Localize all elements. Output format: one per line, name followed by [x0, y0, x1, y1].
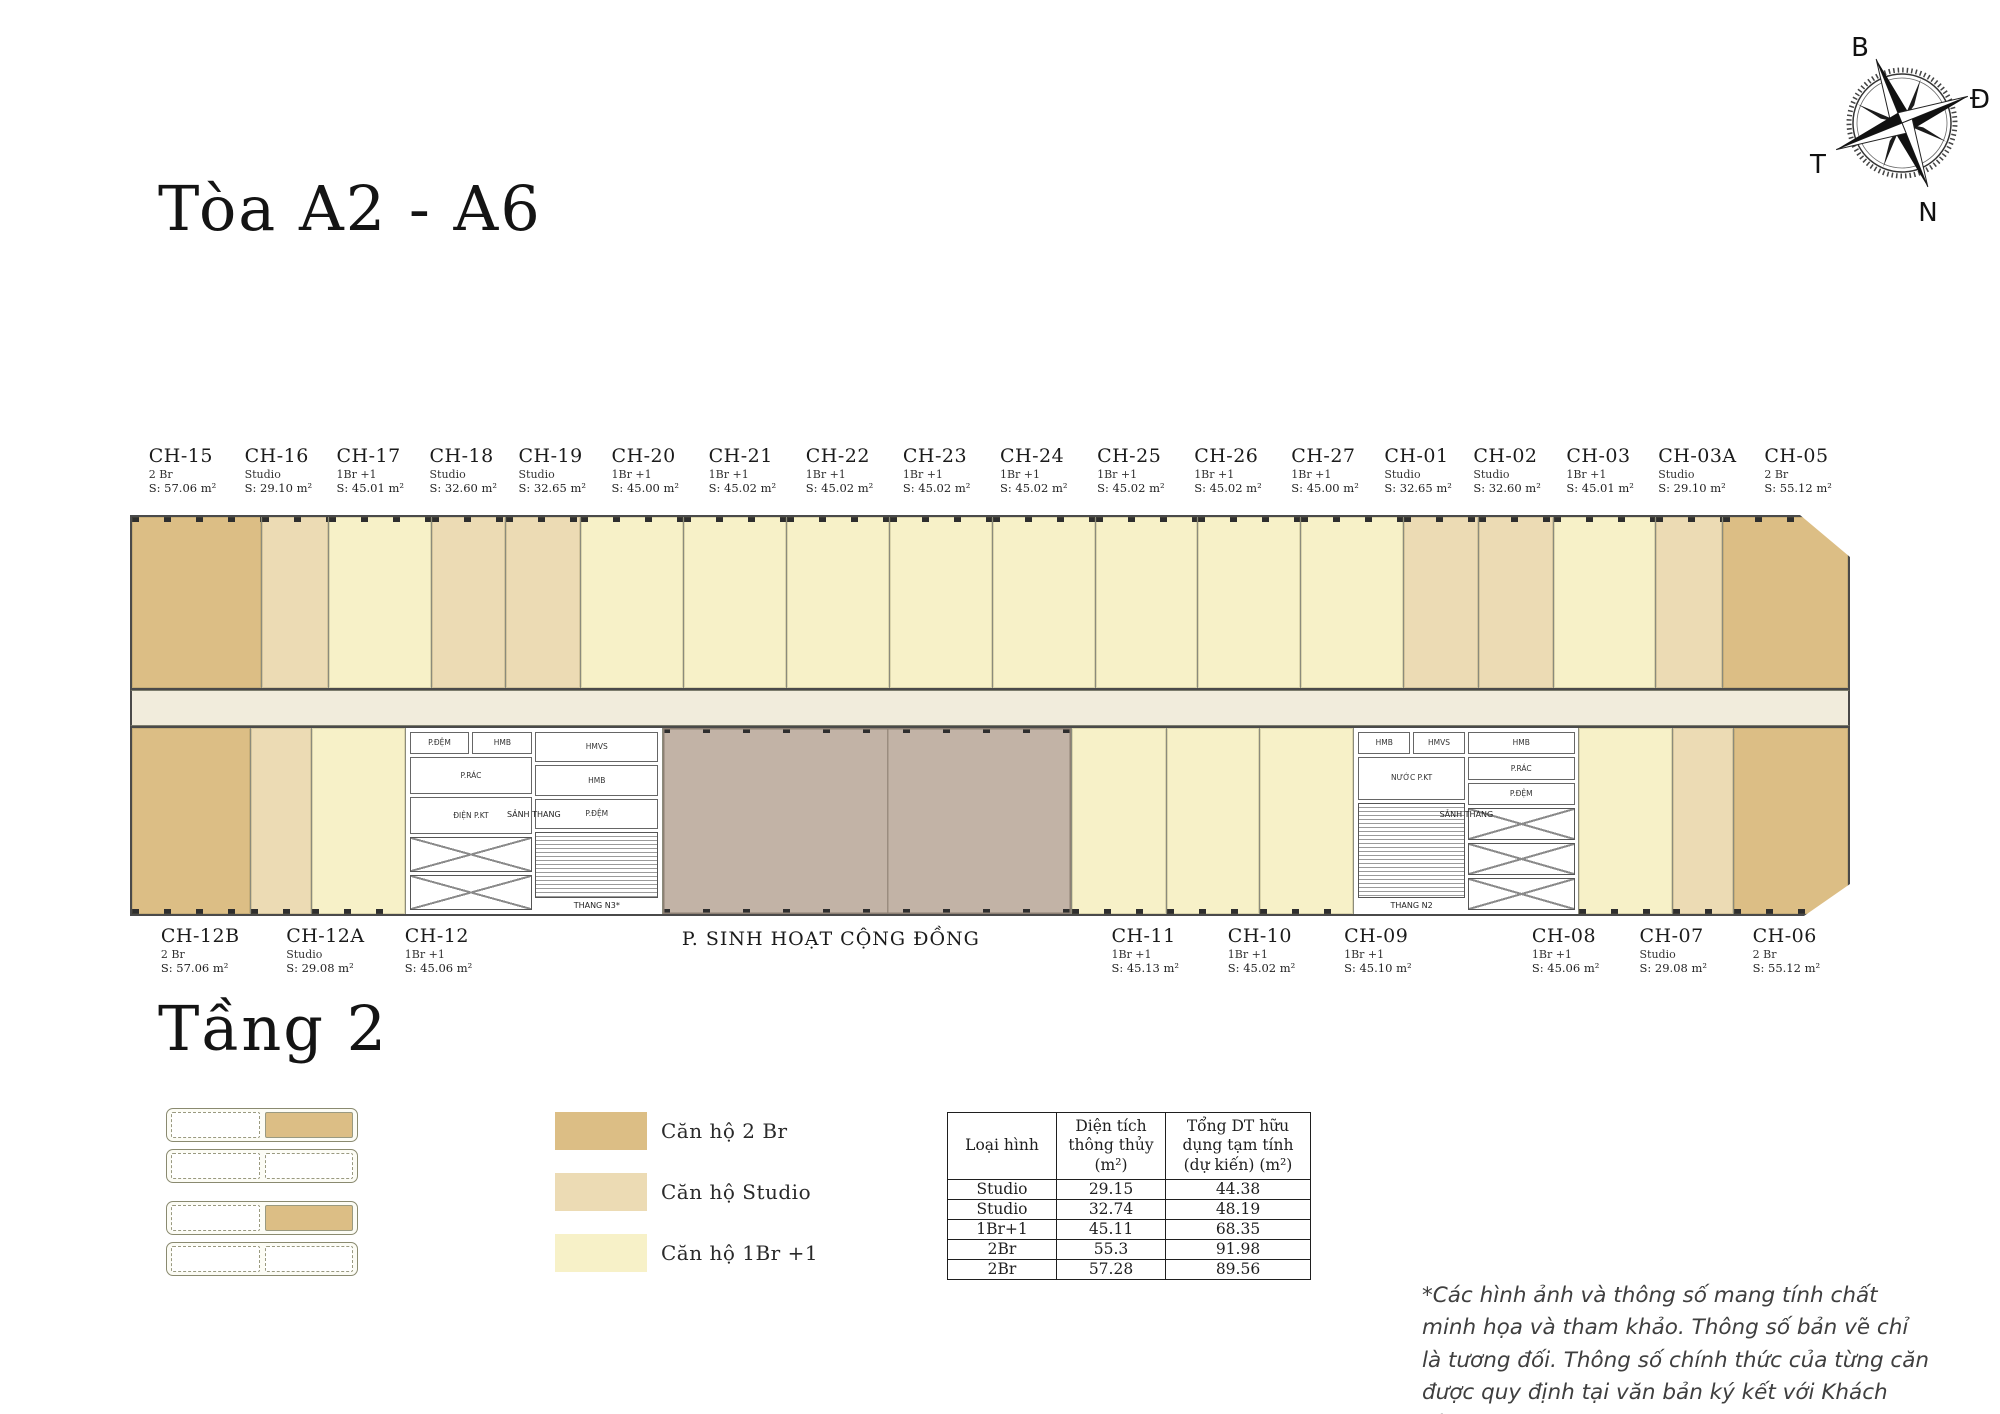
table-cell: 44.38 — [1166, 1180, 1311, 1200]
legend: Căn hộ 2 BrCăn hộ StudioCăn hộ 1Br +1 — [555, 1112, 818, 1295]
unit-label-id: CH-08 — [1532, 926, 1600, 946]
unit-label-CH-03A: CH-03AStudioS: 29.10 m² — [1649, 446, 1747, 510]
disclaimer-text: *Các hình ảnh và thông số mang tính chất… — [1422, 1280, 1932, 1414]
core-room: NƯỚC P.KT — [1358, 757, 1465, 800]
plan-corridor — [130, 690, 1850, 726]
unit-label-CH-17: CH-171Br +1S: 45.01 m² — [322, 446, 419, 510]
unit-label-CH-12A: CH-12AStudioS: 29.08 m² — [270, 926, 380, 998]
minimap-building-slab — [166, 1201, 358, 1235]
page-title: Tòa A2 - A6 — [158, 172, 542, 245]
unit-label-CH-16: CH-16StudioS: 29.10 m² — [235, 446, 322, 510]
core-room: P.RÁC — [1468, 757, 1575, 779]
plan-bottom-wing: P.ĐỆMHMBP.RÁCĐIỆN P.KTHMVSHMBP.ĐỆMTHANG … — [130, 726, 1850, 916]
plan-unit-CH-03A — [1656, 517, 1723, 688]
unit-label-CH-12: CH-121Br +1S: 45.06 m² — [380, 926, 496, 998]
unit-label-type: 1Br +1 — [1194, 468, 1262, 481]
unit-label-type: 1Br +1 — [1566, 468, 1634, 481]
table-row: Studio29.1544.38 — [948, 1180, 1311, 1200]
community-room-label: P. SINH HOẠT CỘNG ĐỒNG — [682, 928, 980, 950]
unit-label-id: CH-24 — [1000, 446, 1068, 466]
minimap-highlighted-block — [265, 1205, 354, 1231]
stair-label: THANG N2 — [1358, 901, 1465, 910]
unit-label-type: 1Br +1 — [1228, 948, 1296, 961]
unit-label-area: S: 45.13 m² — [1111, 961, 1179, 975]
unit-label-type: 1Br +1 — [336, 468, 404, 481]
unit-label-area: S: 45.01 m² — [336, 481, 404, 495]
unit-label-area: S: 45.06 m² — [405, 961, 473, 975]
unit-label-type: Studio — [286, 948, 364, 961]
unit-label-area: S: 45.10 m² — [1344, 961, 1412, 975]
minimap-building-slab — [166, 1149, 358, 1183]
table-cell: Studio — [948, 1200, 1057, 1220]
unit-label-type: 1Br +1 — [903, 468, 971, 481]
unit-label-type: 2 Br — [149, 468, 217, 481]
compass-south-label: N — [1918, 198, 1937, 228]
table-header-cell: Diện tích thông thủy (m²) — [1057, 1113, 1166, 1180]
core-room: P.ĐỆM — [410, 732, 470, 754]
legend-item: Căn hộ Studio — [555, 1173, 818, 1211]
unit-label-CH-20: CH-201Br +1S: 45.00 m² — [597, 446, 694, 510]
unit-label-area: S: 45.02 m² — [806, 481, 874, 495]
unit-label-area: S: 29.10 m² — [245, 481, 313, 495]
unit-label-area: S: 45.02 m² — [1097, 481, 1165, 495]
unit-label-area: S: 55.12 m² — [1753, 961, 1821, 975]
core-room: HMB — [535, 765, 658, 795]
unit-label-id: CH-10 — [1228, 926, 1296, 946]
minimap-block — [171, 1112, 260, 1138]
plan-community-room — [663, 728, 1072, 914]
unit-label-id: CH-06 — [1753, 926, 1821, 946]
unit-label-CH-03: CH-031Br +1S: 45.01 m² — [1552, 446, 1649, 510]
table-cell: 2Br — [948, 1240, 1057, 1260]
unit-label-CH-23: CH-231Br +1S: 45.02 m² — [888, 446, 985, 510]
legend-swatch — [555, 1112, 647, 1150]
floor-title: Tầng 2 — [158, 992, 388, 1065]
unit-label-area: S: 32.65 m² — [518, 481, 586, 495]
unit-label-CH-26: CH-261Br +1S: 45.02 m² — [1179, 446, 1276, 510]
plan-unit-CH-02 — [1479, 517, 1554, 688]
elevator-shaft — [410, 875, 533, 910]
table-cell: 48.19 — [1166, 1200, 1311, 1220]
unit-label-id: CH-09 — [1344, 926, 1412, 946]
unit-label-id: CH-23 — [903, 446, 971, 466]
plan-unit-CH-03 — [1554, 517, 1657, 688]
unit-label-id: CH-01 — [1384, 446, 1452, 466]
unit-label-area: S: 45.02 m² — [1194, 481, 1262, 495]
core-room: HMVS — [1413, 732, 1465, 754]
unit-label-area: S: 45.00 m² — [612, 481, 680, 495]
core-room: HMB — [1358, 732, 1410, 754]
plan-core-left: P.ĐỆMHMBP.RÁCĐIỆN P.KTHMVSHMBP.ĐỆMTHANG … — [406, 728, 664, 914]
plan-unit-CH-01 — [1404, 517, 1479, 688]
unit-label-id: CH-07 — [1640, 926, 1708, 946]
top-unit-label-row: CH-152 BrS: 57.06 m²CH-16StudioS: 29.10 … — [130, 446, 1850, 510]
unit-label-id: CH-21 — [709, 446, 777, 466]
unit-label-id: CH-26 — [1194, 446, 1262, 466]
table-row: 1Br+145.1168.35 — [948, 1220, 1311, 1240]
unit-label-type: 1Br +1 — [1532, 948, 1600, 961]
plan-unit-CH-25 — [1096, 517, 1199, 688]
table-cell: 91.98 — [1166, 1240, 1311, 1260]
unit-label-type: 1Br +1 — [709, 468, 777, 481]
legend-label: Căn hộ Studio — [661, 1180, 811, 1204]
unit-label-id: CH-15 — [149, 446, 217, 466]
unit-label-CH-02: CH-02StudioS: 32.60 m² — [1463, 446, 1552, 510]
unit-label-CH-10: CH-101Br +1S: 45.02 m² — [1203, 926, 1319, 998]
unit-label-area: S: 29.10 m² — [1658, 481, 1736, 495]
unit-label-area: S: 32.65 m² — [1384, 481, 1452, 495]
plan-top-wing — [130, 515, 1850, 690]
unit-label-CH-01: CH-01StudioS: 32.65 m² — [1374, 446, 1463, 510]
minimap-block — [171, 1246, 260, 1272]
core-label-spacer — [497, 926, 575, 998]
table-cell: 57.28 — [1057, 1260, 1166, 1280]
unit-label-type: Studio — [1658, 468, 1736, 481]
site-minimap — [166, 1108, 358, 1276]
lobby-label: SẢNH THANG — [1354, 810, 1578, 819]
unit-label-CH-19: CH-19StudioS: 32.65 m² — [508, 446, 597, 510]
table-cell: 89.56 — [1166, 1260, 1311, 1280]
elevator-shaft — [410, 837, 533, 872]
elevator-shaft — [1468, 843, 1575, 875]
unit-label-id: CH-12 — [405, 926, 473, 946]
unit-label-type: 1Br +1 — [1291, 468, 1359, 481]
compass-icon: B Đ T N — [1802, 8, 2000, 228]
unit-label-id: CH-18 — [430, 446, 498, 466]
table-cell: 68.35 — [1166, 1220, 1311, 1240]
unit-label-id: CH-19 — [518, 446, 586, 466]
community-room-label-cell: P. SINH HOẠT CỘNG ĐỒNG — [575, 926, 1087, 998]
core-col-a: P.ĐỆMHMBP.RÁCĐIỆN P.KT — [410, 732, 533, 910]
unit-label-CH-09: CH-091Br +1S: 45.10 m² — [1320, 926, 1436, 998]
plan-unit-CH-17 — [329, 517, 432, 688]
unit-label-id: CH-05 — [1764, 446, 1832, 466]
minimap-group — [166, 1108, 358, 1183]
elevator-shaft — [1468, 878, 1575, 910]
table-cell: 29.15 — [1057, 1180, 1166, 1200]
plan-unit-CH-08 — [1579, 728, 1673, 914]
unit-label-type: 1Br +1 — [1097, 468, 1165, 481]
plan-unit-CH-05 — [1723, 517, 1848, 688]
compass-east-label: Đ — [1970, 85, 1990, 115]
unit-label-id: CH-03 — [1566, 446, 1634, 466]
compass-west-label: T — [1809, 150, 1826, 180]
plan-unit-CH-09 — [1260, 728, 1354, 914]
table-row: 2Br57.2889.56 — [948, 1260, 1311, 1280]
unit-label-CH-07: CH-07StudioS: 29.08 m² — [1624, 926, 1723, 998]
table-cell: 32.74 — [1057, 1200, 1166, 1220]
plan-unit-CH-10 — [1167, 728, 1261, 914]
unit-label-CH-18: CH-18StudioS: 32.60 m² — [419, 446, 508, 510]
unit-label-type: 1Br +1 — [612, 468, 680, 481]
unit-label-type: 2 Br — [161, 948, 240, 961]
unit-label-area: S: 55.12 m² — [1764, 481, 1832, 495]
unit-label-id: CH-02 — [1473, 446, 1541, 466]
table-cell: 45.11 — [1057, 1220, 1166, 1240]
plan-core-right: HMBHMVSNƯỚC P.KTTHANG N2HMBP.RÁCP.ĐỆMSẢN… — [1354, 728, 1579, 914]
unit-label-type: Studio — [1384, 468, 1452, 481]
unit-label-type: 2 Br — [1764, 468, 1832, 481]
unit-label-type: 1Br +1 — [806, 468, 874, 481]
unit-label-type: 1Br +1 — [405, 948, 473, 961]
unit-label-area: S: 32.60 m² — [1473, 481, 1541, 495]
area-table: Loại hìnhDiện tích thông thủy (m²)Tổng D… — [947, 1112, 1311, 1280]
unit-label-type: Studio — [245, 468, 313, 481]
unit-label-type: 1Br +1 — [1111, 948, 1179, 961]
unit-label-type: Studio — [430, 468, 498, 481]
unit-label-area: S: 32.60 m² — [430, 481, 498, 495]
plan-unit-CH-20 — [581, 517, 684, 688]
bottom-unit-label-row: CH-12B2 BrS: 57.06 m²CH-12AStudioS: 29.0… — [130, 926, 1850, 998]
minimap-building-slab — [166, 1242, 358, 1276]
plan-unit-CH-27 — [1301, 517, 1404, 688]
table-cell: Studio — [948, 1180, 1057, 1200]
table-header-row: Loại hìnhDiện tích thông thủy (m²)Tổng D… — [948, 1113, 1311, 1180]
unit-label-area: S: 45.06 m² — [1532, 961, 1600, 975]
compass-north-label: B — [1851, 33, 1869, 63]
minimap-highlighted-block — [265, 1112, 354, 1138]
table-row: Studio32.7448.19 — [948, 1200, 1311, 1220]
unit-label-id: CH-16 — [245, 446, 313, 466]
table-header-cell: Loại hình — [948, 1113, 1057, 1180]
minimap-block — [171, 1153, 260, 1179]
core-room: HMB — [472, 732, 532, 754]
unit-label-area: S: 29.08 m² — [286, 961, 364, 975]
unit-label-id: CH-03A — [1658, 446, 1736, 466]
table-cell: 1Br+1 — [948, 1220, 1057, 1240]
core-col-b: HMBP.RÁCP.ĐỆM — [1468, 732, 1575, 910]
plan-unit-CH-12 — [312, 728, 406, 914]
legend-item: Căn hộ 1Br +1 — [555, 1234, 818, 1272]
unit-label-CH-05: CH-052 BrS: 55.12 m² — [1746, 446, 1850, 510]
unit-label-CH-24: CH-241Br +1S: 45.02 m² — [985, 446, 1082, 510]
unit-label-type: 1Br +1 — [1000, 468, 1068, 481]
plan-unit-CH-21 — [684, 517, 787, 688]
unit-label-area: S: 45.00 m² — [1291, 481, 1359, 495]
unit-label-area: S: 45.01 m² — [1566, 481, 1634, 495]
core-col-a: HMBHMVSNƯỚC P.KTTHANG N2 — [1358, 732, 1465, 910]
unit-label-area: S: 45.02 m² — [903, 481, 971, 495]
unit-label-id: CH-11 — [1111, 926, 1179, 946]
table-header-cell: Tổng DT hữu dụng tạm tính (dự kiến) (m²) — [1166, 1113, 1311, 1180]
plan-unit-CH-11 — [1072, 728, 1166, 914]
core-room: HMB — [1468, 732, 1575, 754]
table-cell: 55.3 — [1057, 1240, 1166, 1260]
unit-label-id: CH-27 — [1291, 446, 1359, 466]
unit-label-area: S: 45.02 m² — [1000, 481, 1068, 495]
unit-label-CH-21: CH-211Br +1S: 45.02 m² — [694, 446, 791, 510]
core-label-spacer — [1436, 926, 1507, 998]
minimap-group — [166, 1201, 358, 1276]
unit-label-type: 1Br +1 — [1344, 948, 1412, 961]
unit-label-area: S: 29.08 m² — [1640, 961, 1708, 975]
unit-label-area: S: 45.02 m² — [1228, 961, 1296, 975]
unit-label-CH-06: CH-062 BrS: 55.12 m² — [1723, 926, 1850, 998]
legend-label: Căn hộ 1Br +1 — [661, 1241, 818, 1265]
lobby-label: SẢNH THANG — [406, 810, 663, 819]
minimap-building-slab — [166, 1108, 358, 1142]
floor-plan: P.ĐỆMHMBP.RÁCĐIỆN P.KTHMVSHMBP.ĐỆMTHANG … — [130, 515, 1850, 916]
unit-label-id: CH-25 — [1097, 446, 1165, 466]
core-col-b: HMVSHMBP.ĐỆMTHANG N3* — [535, 732, 658, 910]
unit-label-id: CH-20 — [612, 446, 680, 466]
plan-unit-CH-06 — [1734, 728, 1848, 914]
unit-label-area: S: 57.06 m² — [149, 481, 217, 495]
unit-label-area: S: 57.06 m² — [161, 961, 240, 975]
unit-label-type: Studio — [1640, 948, 1708, 961]
stair-flight — [535, 832, 658, 898]
core-room: P.RÁC — [410, 757, 533, 794]
legend-label: Căn hộ 2 Br — [661, 1119, 788, 1143]
plan-unit-CH-07 — [1673, 728, 1734, 914]
plan-unit-CH-18 — [432, 517, 507, 688]
table-row: 2Br55.391.98 — [948, 1240, 1311, 1260]
plan-unit-CH-26 — [1198, 517, 1301, 688]
unit-label-id: CH-12B — [161, 926, 240, 946]
unit-label-CH-11: CH-111Br +1S: 45.13 m² — [1087, 926, 1203, 998]
unit-label-CH-25: CH-251Br +1S: 45.02 m² — [1082, 446, 1179, 510]
unit-label-type: 2 Br — [1753, 948, 1821, 961]
unit-label-CH-22: CH-221Br +1S: 45.02 m² — [791, 446, 888, 510]
plan-unit-CH-19 — [506, 517, 581, 688]
unit-label-CH-12B: CH-12B2 BrS: 57.06 m² — [130, 926, 270, 998]
unit-label-id: CH-12A — [286, 926, 364, 946]
legend-item: Căn hộ 2 Br — [555, 1112, 818, 1150]
core-room: HMVS — [535, 732, 658, 762]
legend-swatch — [555, 1173, 647, 1211]
unit-label-CH-08: CH-081Br +1S: 45.06 m² — [1507, 926, 1623, 998]
unit-label-type: Studio — [518, 468, 586, 481]
plan-unit-CH-16 — [262, 517, 329, 688]
unit-label-type: Studio — [1473, 468, 1541, 481]
unit-label-CH-15: CH-152 BrS: 57.06 m² — [130, 446, 235, 510]
unit-label-CH-27: CH-271Br +1S: 45.00 m² — [1277, 446, 1374, 510]
plan-unit-CH-22 — [787, 517, 890, 688]
plan-unit-CH-24 — [993, 517, 1096, 688]
plan-unit-CH-23 — [890, 517, 993, 688]
plan-unit-CH-12B — [132, 728, 251, 914]
page: Tòa A2 - A6 B Đ T N CH-152 BrS: 57.06 m — [0, 0, 2000, 1414]
unit-label-id: CH-22 — [806, 446, 874, 466]
unit-label-area: S: 45.02 m² — [709, 481, 777, 495]
legend-swatch — [555, 1234, 647, 1272]
table-cell: 2Br — [948, 1260, 1057, 1280]
stair-label: THANG N3* — [535, 901, 658, 910]
minimap-block — [265, 1153, 354, 1179]
plan-unit-CH-12A — [251, 728, 312, 914]
plan-unit-CH-15 — [132, 517, 262, 688]
unit-label-id: CH-17 — [336, 446, 404, 466]
minimap-block — [171, 1205, 260, 1231]
core-room: P.ĐỆM — [1468, 783, 1575, 805]
minimap-block — [265, 1246, 354, 1272]
